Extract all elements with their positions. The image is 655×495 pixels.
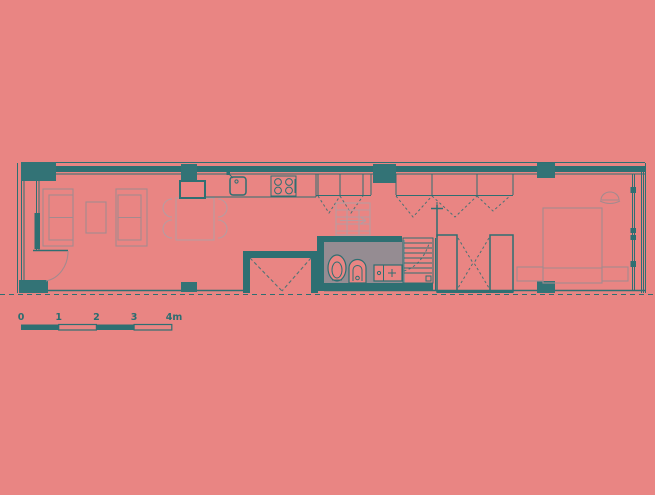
scale-tick-label: 3 [131, 312, 138, 323]
pillar [181, 164, 197, 180]
nightstand [602, 267, 628, 281]
dining-chair [218, 199, 227, 217]
window-mullion [631, 261, 637, 267]
scale-tick-label: 0 [18, 312, 25, 323]
pillar [181, 282, 197, 292]
pillar [537, 163, 555, 178]
fold-door-symbol [250, 258, 282, 291]
cabinet-door-swing [432, 196, 477, 217]
kitchen-sink [227, 172, 247, 196]
cabinet-door-swing [396, 196, 432, 217]
handrail-post [431, 202, 443, 237]
bedroom-closets [437, 235, 513, 293]
entrance-door [33, 251, 68, 282]
sofa [116, 189, 147, 246]
duct-shaft [180, 181, 205, 198]
dining-chair [163, 199, 172, 217]
floor-plan-drawing: 0 1 2 3 4m [0, 0, 655, 495]
scale-segment [21, 325, 59, 331]
scale-tick-label: 2 [93, 312, 100, 323]
washbasin-icon [374, 265, 402, 281]
dining-chair [163, 220, 172, 238]
left-window [35, 181, 41, 250]
pillar [19, 280, 48, 293]
scale-segment [134, 325, 172, 331]
ceiling-light-icon [600, 192, 620, 204]
coffee-table [86, 202, 106, 233]
toilet-icon [328, 255, 346, 281]
scale-tick-label: 4m [166, 312, 183, 323]
closet [490, 235, 513, 292]
dining-chair [218, 220, 227, 238]
scale-segment [96, 325, 134, 331]
stairs-lower [403, 238, 436, 290]
stairs-upper [336, 203, 370, 235]
living-room [43, 189, 147, 246]
fold-door-symbol [282, 258, 311, 291]
bidet-icon [349, 260, 366, 284]
dining-table [176, 198, 214, 240]
closet [437, 235, 457, 292]
pillar [373, 164, 396, 183]
nightstand [517, 267, 543, 281]
scale-bar: 0 1 2 3 4m [18, 312, 183, 330]
bedroom [517, 192, 628, 283]
stove [271, 176, 296, 196]
kitchen [180, 172, 316, 199]
scale-segment [59, 325, 97, 331]
window-mullion [631, 187, 637, 193]
scale-tick-label: 1 [55, 312, 62, 323]
bathroom-wall [317, 236, 402, 242]
bifold-door-symbol [474, 238, 489, 288]
cabinet-door-swing [477, 196, 510, 211]
pillars [19, 162, 555, 293]
pillar [21, 162, 56, 181]
window-mullion [631, 235, 637, 240]
bathroom-wall [317, 236, 324, 291]
dining-area [163, 198, 227, 240]
entry-recess [243, 251, 318, 293]
door-swing-arc [46, 251, 68, 281]
bed [543, 208, 602, 283]
window-mullion [631, 228, 637, 233]
bathroom-wall [324, 283, 433, 290]
sofa [43, 189, 73, 246]
bifold-door-symbol [458, 238, 473, 288]
floor-plan-canvas: 0 1 2 3 4m [0, 0, 655, 495]
